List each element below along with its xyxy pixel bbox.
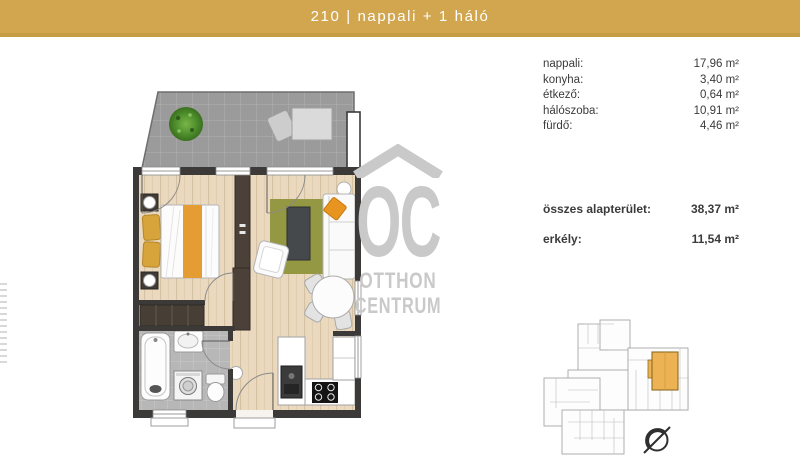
lamp bbox=[144, 197, 156, 209]
sofa bbox=[323, 194, 355, 279]
site-plan bbox=[540, 318, 710, 460]
pillow bbox=[142, 214, 161, 240]
table-row: étkező: 0,64 m² bbox=[543, 88, 739, 104]
bathroom-window bbox=[153, 410, 186, 418]
sink bbox=[174, 331, 203, 352]
room-value: 3,40 m² bbox=[700, 73, 739, 89]
total-label: erkély: bbox=[543, 231, 582, 247]
kitchen-window bbox=[355, 336, 361, 378]
hall-window bbox=[216, 167, 250, 175]
total-value: 11,54 m² bbox=[692, 231, 739, 247]
floorplan-drawing bbox=[128, 88, 368, 433]
header-bar: 210 | nappali + 1 háló bbox=[0, 0, 800, 37]
table-row: nappali: 17,96 m² bbox=[543, 57, 739, 73]
table-row: fürdő: 4,46 m² bbox=[543, 119, 739, 135]
balcony-side-wall bbox=[347, 112, 360, 168]
room-value: 4,46 m² bbox=[700, 119, 739, 135]
floorplan-flyer: 210 | nappali + 1 háló bbox=[0, 0, 800, 465]
balcony bbox=[142, 92, 360, 168]
room-area-table: nappali: 17,96 m² konyha: 3,40 m² étkező… bbox=[543, 57, 739, 135]
window-step bbox=[151, 418, 188, 426]
table-row: hálószoba: 10,91 m² bbox=[543, 104, 739, 120]
balcony-area-row: erkély: 11,54 m² bbox=[543, 231, 739, 247]
room-value: 0,64 m² bbox=[700, 88, 739, 104]
room-label: fürdő: bbox=[543, 119, 572, 135]
total-label: összes alapterület: bbox=[543, 201, 651, 217]
entrance-step bbox=[234, 418, 275, 428]
total-area-row: összes alapterület: 38,37 m² bbox=[543, 201, 739, 217]
washing-machine bbox=[174, 371, 202, 400]
lamp bbox=[144, 275, 156, 287]
side-window bbox=[355, 281, 361, 315]
room-label: nappali: bbox=[543, 57, 583, 73]
page-title: 210 | nappali + 1 háló bbox=[311, 8, 490, 25]
coffee-table bbox=[287, 207, 310, 260]
toilet bbox=[206, 374, 225, 402]
pillow bbox=[142, 242, 160, 268]
cooktop bbox=[312, 382, 338, 403]
totals-block: összes alapterület: 38,37 m² erkély: 11,… bbox=[543, 201, 739, 261]
oven bbox=[281, 366, 302, 398]
room-value: 10,91 m² bbox=[694, 104, 739, 120]
bed bbox=[161, 205, 219, 278]
left-edge-watermark bbox=[0, 283, 7, 363]
room-value: 17,96 m² bbox=[694, 57, 739, 73]
balcony-table bbox=[292, 108, 332, 140]
plant bbox=[169, 107, 203, 141]
room-label: hálószoba: bbox=[543, 104, 599, 120]
compass-icon bbox=[644, 427, 670, 453]
room-label: konyha: bbox=[543, 73, 583, 89]
table-row: konyha: 3,40 m² bbox=[543, 73, 739, 89]
wardrobe bbox=[139, 300, 205, 326]
dining-table bbox=[312, 276, 354, 318]
hall-sliding-door bbox=[233, 174, 250, 330]
highlighted-unit bbox=[648, 352, 678, 390]
bathtub bbox=[141, 333, 170, 400]
room-label: étkező: bbox=[543, 88, 580, 104]
total-value: 38,37 m² bbox=[691, 201, 739, 217]
